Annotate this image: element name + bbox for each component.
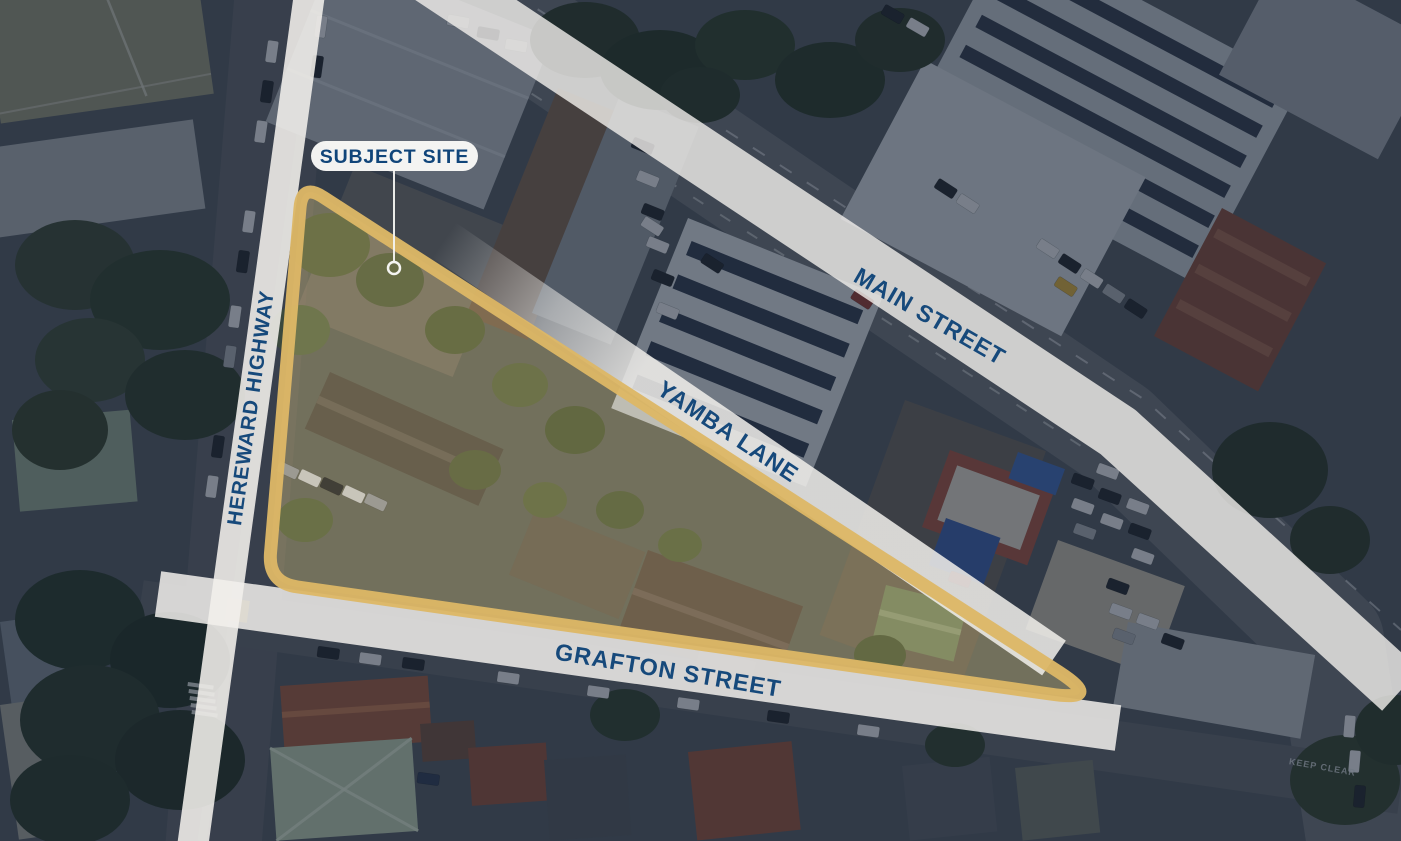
aerial-map: KEEP CLEAR HEREWARD HIGHWAY MAIN STREET …: [0, 0, 1401, 841]
callout-label: SUBJECT SITE: [320, 146, 469, 168]
